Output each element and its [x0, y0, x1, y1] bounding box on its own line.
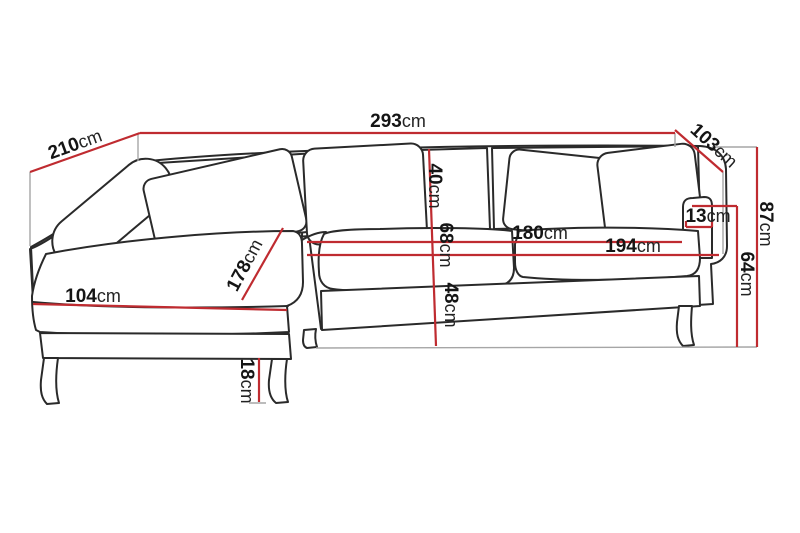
dimension-label-64cm: 64cm — [736, 251, 757, 296]
dimension-label-68cm: 68cm — [435, 222, 456, 267]
sofa-illustration — [30, 142, 727, 404]
sofa-dimension-diagram: 293cm 210cm 103cm 87cm 13cm 64cm 40cm 68… — [0, 0, 800, 533]
dimension-label-194cm: 194cm — [605, 236, 661, 257]
dimension-label-40cm: 40cm — [424, 163, 445, 208]
diagram-svg: 293cm 210cm 103cm 87cm 13cm 64cm 40cm 68… — [0, 0, 800, 533]
extension-floor-line — [316, 347, 757, 348]
leg-main-right — [677, 306, 694, 346]
dimension-label-13cm: 13cm — [685, 206, 730, 227]
chaise-base — [40, 333, 291, 359]
leg-main-left — [303, 329, 317, 348]
dimension-label-180cm: 180cm — [512, 223, 568, 244]
dimension-label-48cm: 48cm — [440, 282, 461, 327]
dimension-label-104cm: 104cm — [65, 286, 121, 307]
leg-chaise-left — [41, 358, 59, 404]
seat-cushion-left — [319, 228, 514, 291]
dimension-label-18cm: 18cm — [236, 358, 257, 403]
dimension-label-293cm: 293cm — [370, 111, 426, 132]
leg-chaise-right — [269, 359, 288, 403]
dimension-label-87cm: 87cm — [755, 201, 776, 246]
dimension-label-210cm: 210cm — [45, 125, 105, 164]
